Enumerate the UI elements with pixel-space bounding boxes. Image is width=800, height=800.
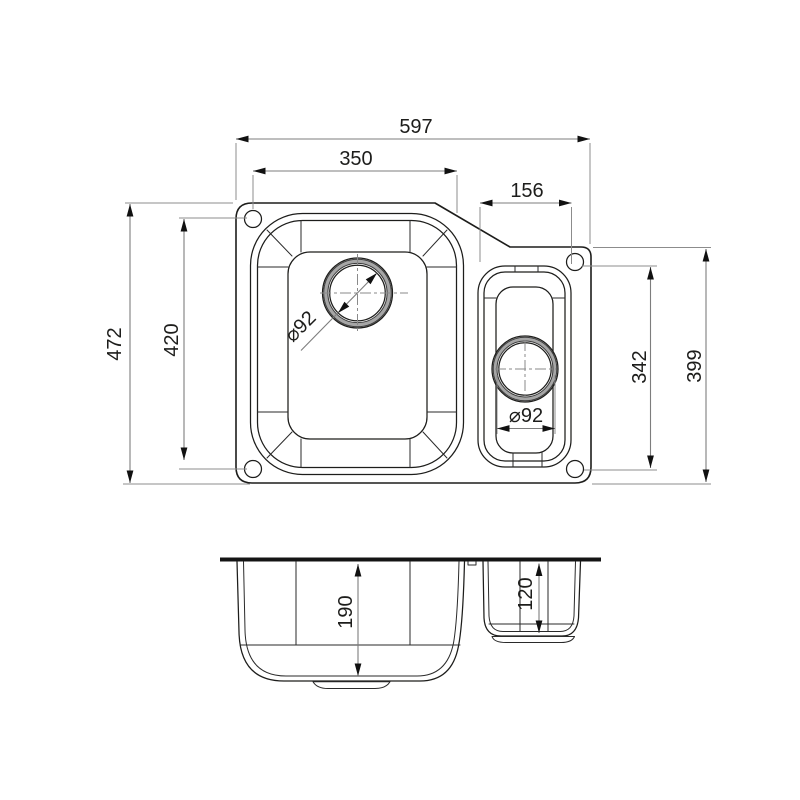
mounting-hole-bottom-left — [245, 461, 262, 478]
overall-width-label: 597 — [399, 116, 432, 138]
plan-view: ⌀92 — [104, 116, 711, 484]
main-drain — [320, 254, 408, 333]
between-bowl-notch — [468, 562, 476, 566]
dimension-bolt-span-right: 342 — [582, 266, 657, 470]
overall-height-label: 472 — [104, 327, 126, 360]
sink-technical-drawing-page: ⌀92 — [0, 0, 800, 800]
main-bowl-depth-label: 190 — [335, 595, 357, 628]
small-drain-section — [492, 637, 575, 643]
mounting-hole-bottom-right — [567, 461, 584, 478]
section-view: 190 120 — [220, 558, 601, 689]
dimension-main-bowl-depth: 190 — [335, 564, 361, 676]
dimension-small-bowl-depth: 120 — [515, 564, 542, 634]
dimension-bolt-span-left: 420 — [161, 218, 247, 469]
main-drain-section — [313, 682, 390, 689]
main-bowl: ⌀92 — [251, 214, 464, 475]
mounting-hole-top-left — [245, 211, 262, 228]
bolt-span-left-label: 420 — [161, 323, 183, 356]
small-drain — [492, 336, 558, 402]
right-edge-height-label: 399 — [684, 349, 706, 382]
small-drain-diameter-label: ⌀92 — [509, 405, 543, 427]
main-bowl-section: 190 — [237, 562, 465, 689]
small-bowl-width-label: 156 — [510, 180, 543, 202]
main-bowl-rim-outer — [251, 214, 464, 475]
small-bowl: ⌀92 — [478, 266, 571, 467]
bolt-span-right-label: 342 — [629, 350, 651, 383]
small-bowl-depth-label: 120 — [515, 577, 537, 610]
mounting-hole-top-right — [567, 254, 584, 271]
dimension-small-bowl-width: 156 — [480, 180, 572, 264]
small-bowl-section: 120 — [483, 562, 581, 643]
main-bowl-width-label: 350 — [339, 148, 372, 170]
dimension-right-edge-height: 399 — [592, 248, 711, 485]
sink-technical-drawing: ⌀92 — [0, 0, 800, 800]
rim-bar — [220, 558, 601, 562]
main-drain-diameter-label: ⌀92 — [281, 307, 321, 347]
